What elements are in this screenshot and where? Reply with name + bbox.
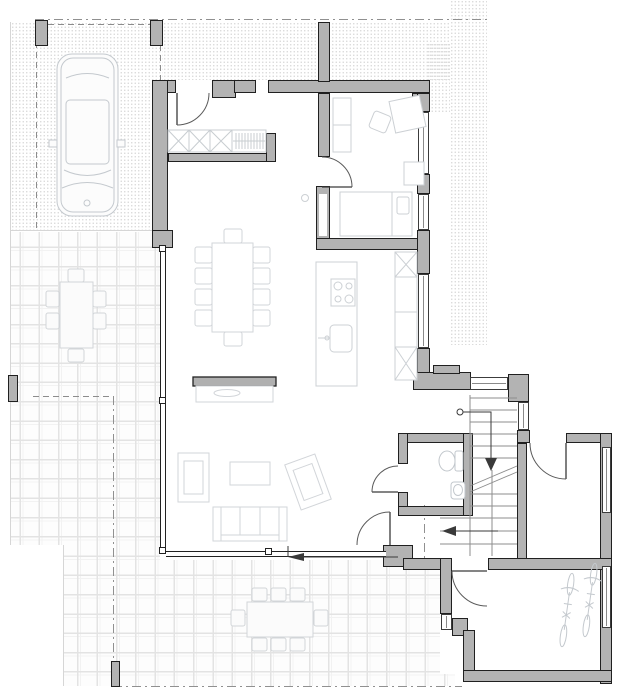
hall-door-arc — [357, 512, 390, 545]
car-mirror-right — [117, 140, 125, 147]
desk — [389, 95, 426, 133]
car — [49, 54, 125, 216]
armchair-rotated — [285, 454, 331, 510]
floor-plan — [0, 0, 618, 692]
ceiling-lamp-symbol — [302, 195, 309, 202]
kitchen-sink — [330, 325, 352, 352]
dining-chair — [195, 268, 212, 284]
tall-cabinet-run — [395, 252, 417, 380]
sideboard-top — [193, 377, 276, 386]
dining-table — [212, 243, 253, 332]
dining-chair — [253, 268, 270, 284]
armchair — [178, 453, 209, 502]
bicycle-1 — [553, 572, 581, 648]
furniture-overlay — [0, 0, 618, 692]
entry-door-arc — [177, 93, 209, 125]
dining-chair — [224, 332, 242, 346]
entrance-door-arc — [530, 443, 566, 479]
arrowhead-left — [288, 553, 304, 561]
bicycle-2 — [576, 562, 604, 638]
sofa — [213, 507, 287, 541]
stair-break-line — [470, 466, 517, 492]
outdoor-table-south — [247, 602, 313, 637]
arrowhead-left — [442, 526, 456, 536]
entry-wardrobe — [168, 130, 266, 152]
pillow — [397, 197, 409, 214]
dining-chair — [253, 247, 270, 263]
sideboard — [193, 377, 276, 402]
wc-door-arc — [372, 466, 398, 492]
dining-chair — [195, 247, 212, 263]
sliding-door-arrow — [288, 546, 398, 561]
bike-room-door-arc — [452, 571, 487, 606]
dining-chair — [195, 289, 212, 305]
lounge-furniture — [178, 453, 331, 541]
dining-chair — [195, 310, 212, 326]
dining-set — [195, 229, 270, 346]
side-table — [404, 162, 424, 185]
dining-chair — [253, 289, 270, 305]
toilet-tank — [455, 451, 463, 471]
car-mirror-left — [49, 140, 57, 147]
kitchen-island — [316, 262, 357, 386]
wc-fixtures — [439, 451, 465, 499]
arrowhead-down — [485, 458, 497, 471]
bedroom-door-arc — [322, 157, 352, 187]
coffee-table — [230, 462, 270, 485]
south-terrace-dining-set — [231, 588, 328, 651]
dining-chair — [253, 310, 270, 326]
west-terrace-dining-set — [46, 269, 106, 362]
desk-chair — [368, 110, 391, 133]
toilet-bowl — [439, 451, 455, 471]
sideboard-body — [196, 386, 273, 402]
dining-chair — [224, 229, 242, 243]
outdoor-table-west — [60, 282, 93, 348]
bedroom-furniture — [333, 95, 426, 236]
